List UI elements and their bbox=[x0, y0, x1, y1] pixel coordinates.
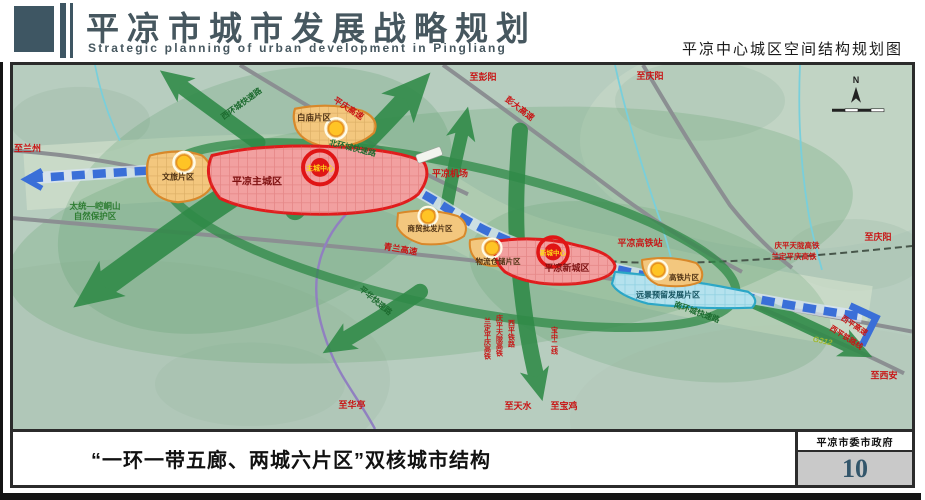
header-accent-bar-thin bbox=[70, 3, 73, 58]
node-gaotie bbox=[649, 260, 668, 279]
compass-north-label: N bbox=[853, 75, 860, 85]
label-to-tianshui: 至天水 bbox=[505, 400, 533, 411]
header-accent-square bbox=[14, 6, 54, 52]
label-to-xian: 至西安 bbox=[871, 369, 898, 380]
label-to-pengyang: 至彭阳 bbox=[470, 71, 497, 82]
label-to-lanzhou: 至兰州 bbox=[14, 143, 41, 154]
label-to-qingyang-east: 至庆阳 bbox=[865, 231, 892, 242]
label-to-huating: 至华亭 bbox=[339, 399, 366, 410]
page-subtitle-english: Strategic planning of urban development … bbox=[88, 41, 507, 55]
stamp-box: 平凉市委市政府 10 bbox=[795, 432, 912, 485]
label-hsr-station: 平凉高铁站 bbox=[618, 237, 663, 248]
header-accent-bar bbox=[60, 3, 66, 58]
label-zone-wuliu: 物流仓储片区 bbox=[476, 256, 521, 266]
label-qptl-hsr: 庆平天陇高铁 bbox=[775, 240, 820, 250]
label-zone-gaotie: 高铁片区 bbox=[669, 272, 699, 282]
label-to-qingyang-north: 至庆阳 bbox=[637, 70, 664, 81]
structure-caption: “一环一带五廊、两城六片区”双核城市结构 bbox=[91, 444, 491, 473]
planning-map-svg: 主城中心 新城中心 平凉主城区 平凉新城区 文旅片区 白庙片区 商贸批发片区 物… bbox=[13, 65, 912, 429]
label-new-city-center: 新城中心 bbox=[540, 248, 566, 257]
map-title: 平凉中心城区空间结构规划图 bbox=[682, 38, 903, 59]
label-zone-yuanjing: 远景预留发展片区 bbox=[636, 290, 700, 300]
label-ldpq-hsr: 兰定平庆高铁 bbox=[772, 251, 817, 261]
label-baozhong-line: 宝中二线 bbox=[550, 326, 558, 356]
label-nature-reserve-2: 自然保护区 bbox=[74, 211, 117, 221]
label-to-baoji: 至宝鸡 bbox=[551, 400, 578, 411]
label-airport: 平凉机场 bbox=[432, 167, 468, 178]
node-wuliu bbox=[483, 239, 502, 258]
scale-bar bbox=[832, 109, 884, 112]
label-main-city: 平凉主城区 bbox=[232, 174, 282, 187]
label-zone-wenlv: 文旅片区 bbox=[162, 171, 194, 181]
label-zone-baimiao: 白庙片区 bbox=[297, 113, 332, 123]
caption-cell: “一环一带五廊、两城六片区”双核城市结构 bbox=[13, 432, 795, 485]
slide-header: 平凉市城市发展战略规划 Strategic planning of urban … bbox=[0, 0, 925, 62]
label-nature-reserve-1: 太统—崆峒山 bbox=[69, 201, 121, 211]
organization-label: 平凉市委市政府 bbox=[798, 432, 912, 450]
label-xiping-rail-vertical: 西平铁路 bbox=[507, 320, 515, 349]
label-zone-shangmao: 商贸批发片区 bbox=[408, 223, 453, 233]
page-bottom-border bbox=[0, 493, 921, 500]
label-new-city: 平凉新城区 bbox=[545, 262, 590, 273]
node-wenlv bbox=[174, 152, 195, 173]
page-left-border bbox=[0, 6, 3, 498]
page-number: 10 bbox=[798, 450, 912, 485]
planning-map: 主城中心 新城中心 平凉主城区 平凉新城区 文旅片区 白庙片区 商贸批发片区 物… bbox=[10, 62, 915, 432]
label-main-city-center: 主城中心 bbox=[306, 163, 334, 172]
slide-footer: “一环一带五廊、两城六片区”双核城市结构 平凉市委市政府 10 bbox=[10, 432, 915, 488]
node-shangmao bbox=[419, 207, 438, 226]
